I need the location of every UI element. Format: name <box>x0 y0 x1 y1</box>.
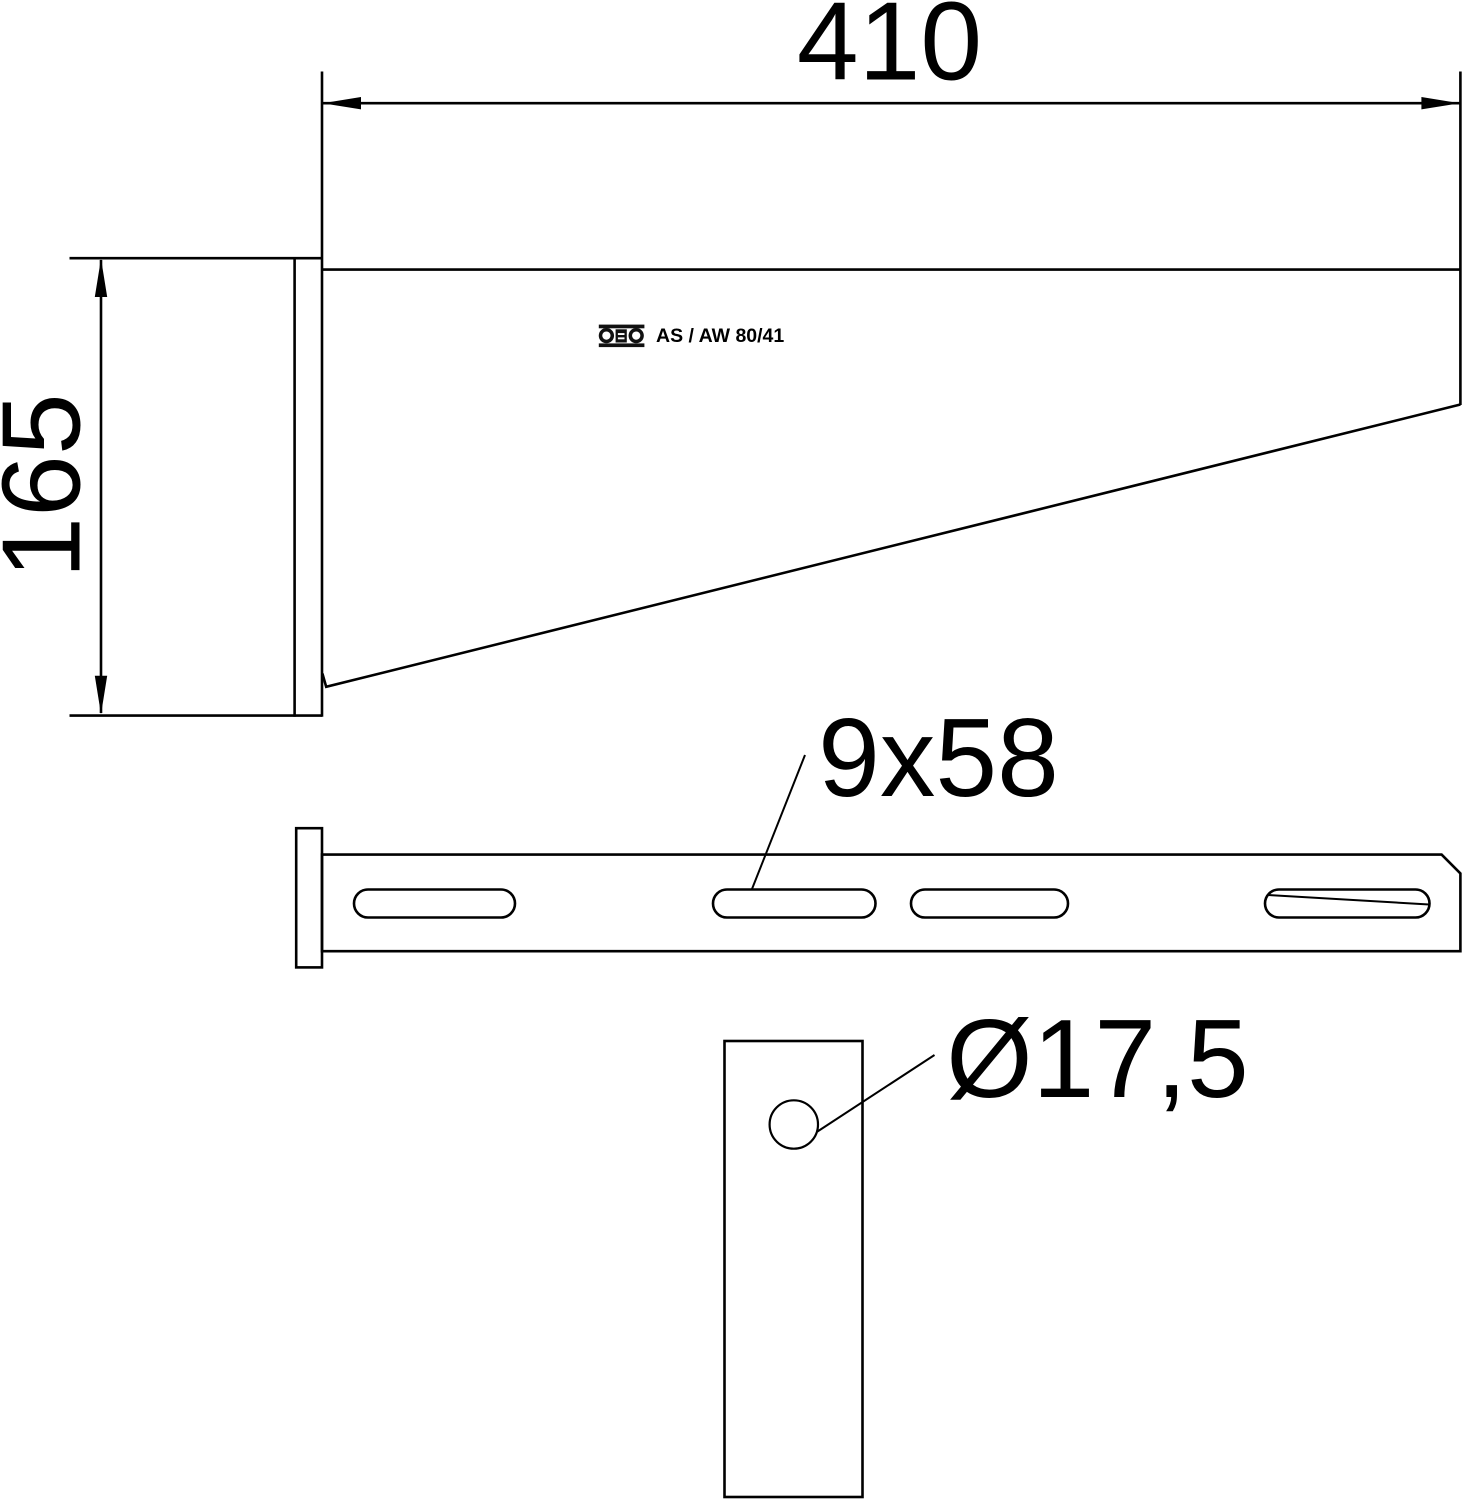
svg-text:9x58: 9x58 <box>818 696 1059 820</box>
svg-text:165: 165 <box>0 393 104 578</box>
svg-text:AS / AW 80/41: AS / AW 80/41 <box>656 325 784 347</box>
svg-text:410: 410 <box>797 0 982 104</box>
svg-text:Ø17,5: Ø17,5 <box>946 997 1248 1121</box>
